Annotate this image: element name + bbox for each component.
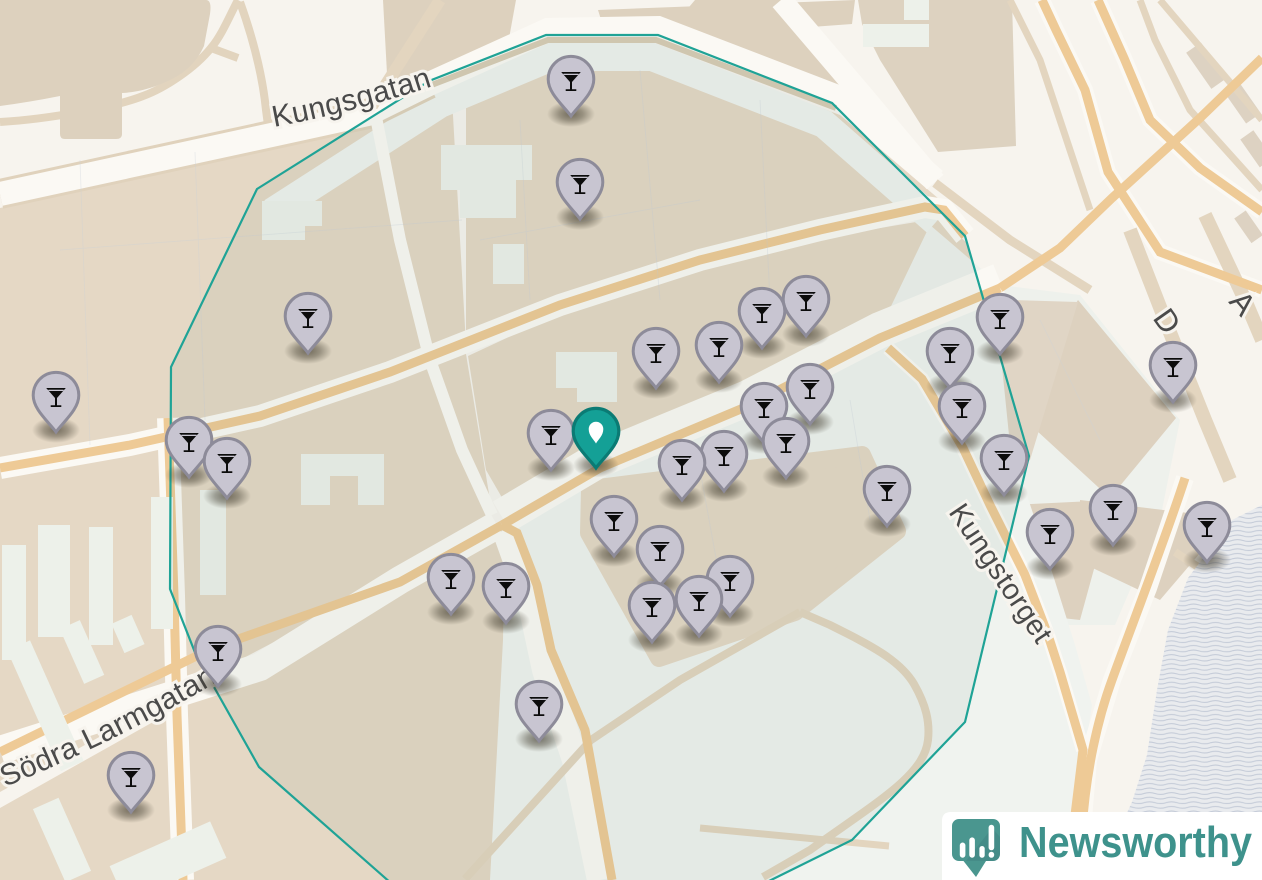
svg-text:Newsworthy: Newsworthy — [1019, 818, 1252, 867]
